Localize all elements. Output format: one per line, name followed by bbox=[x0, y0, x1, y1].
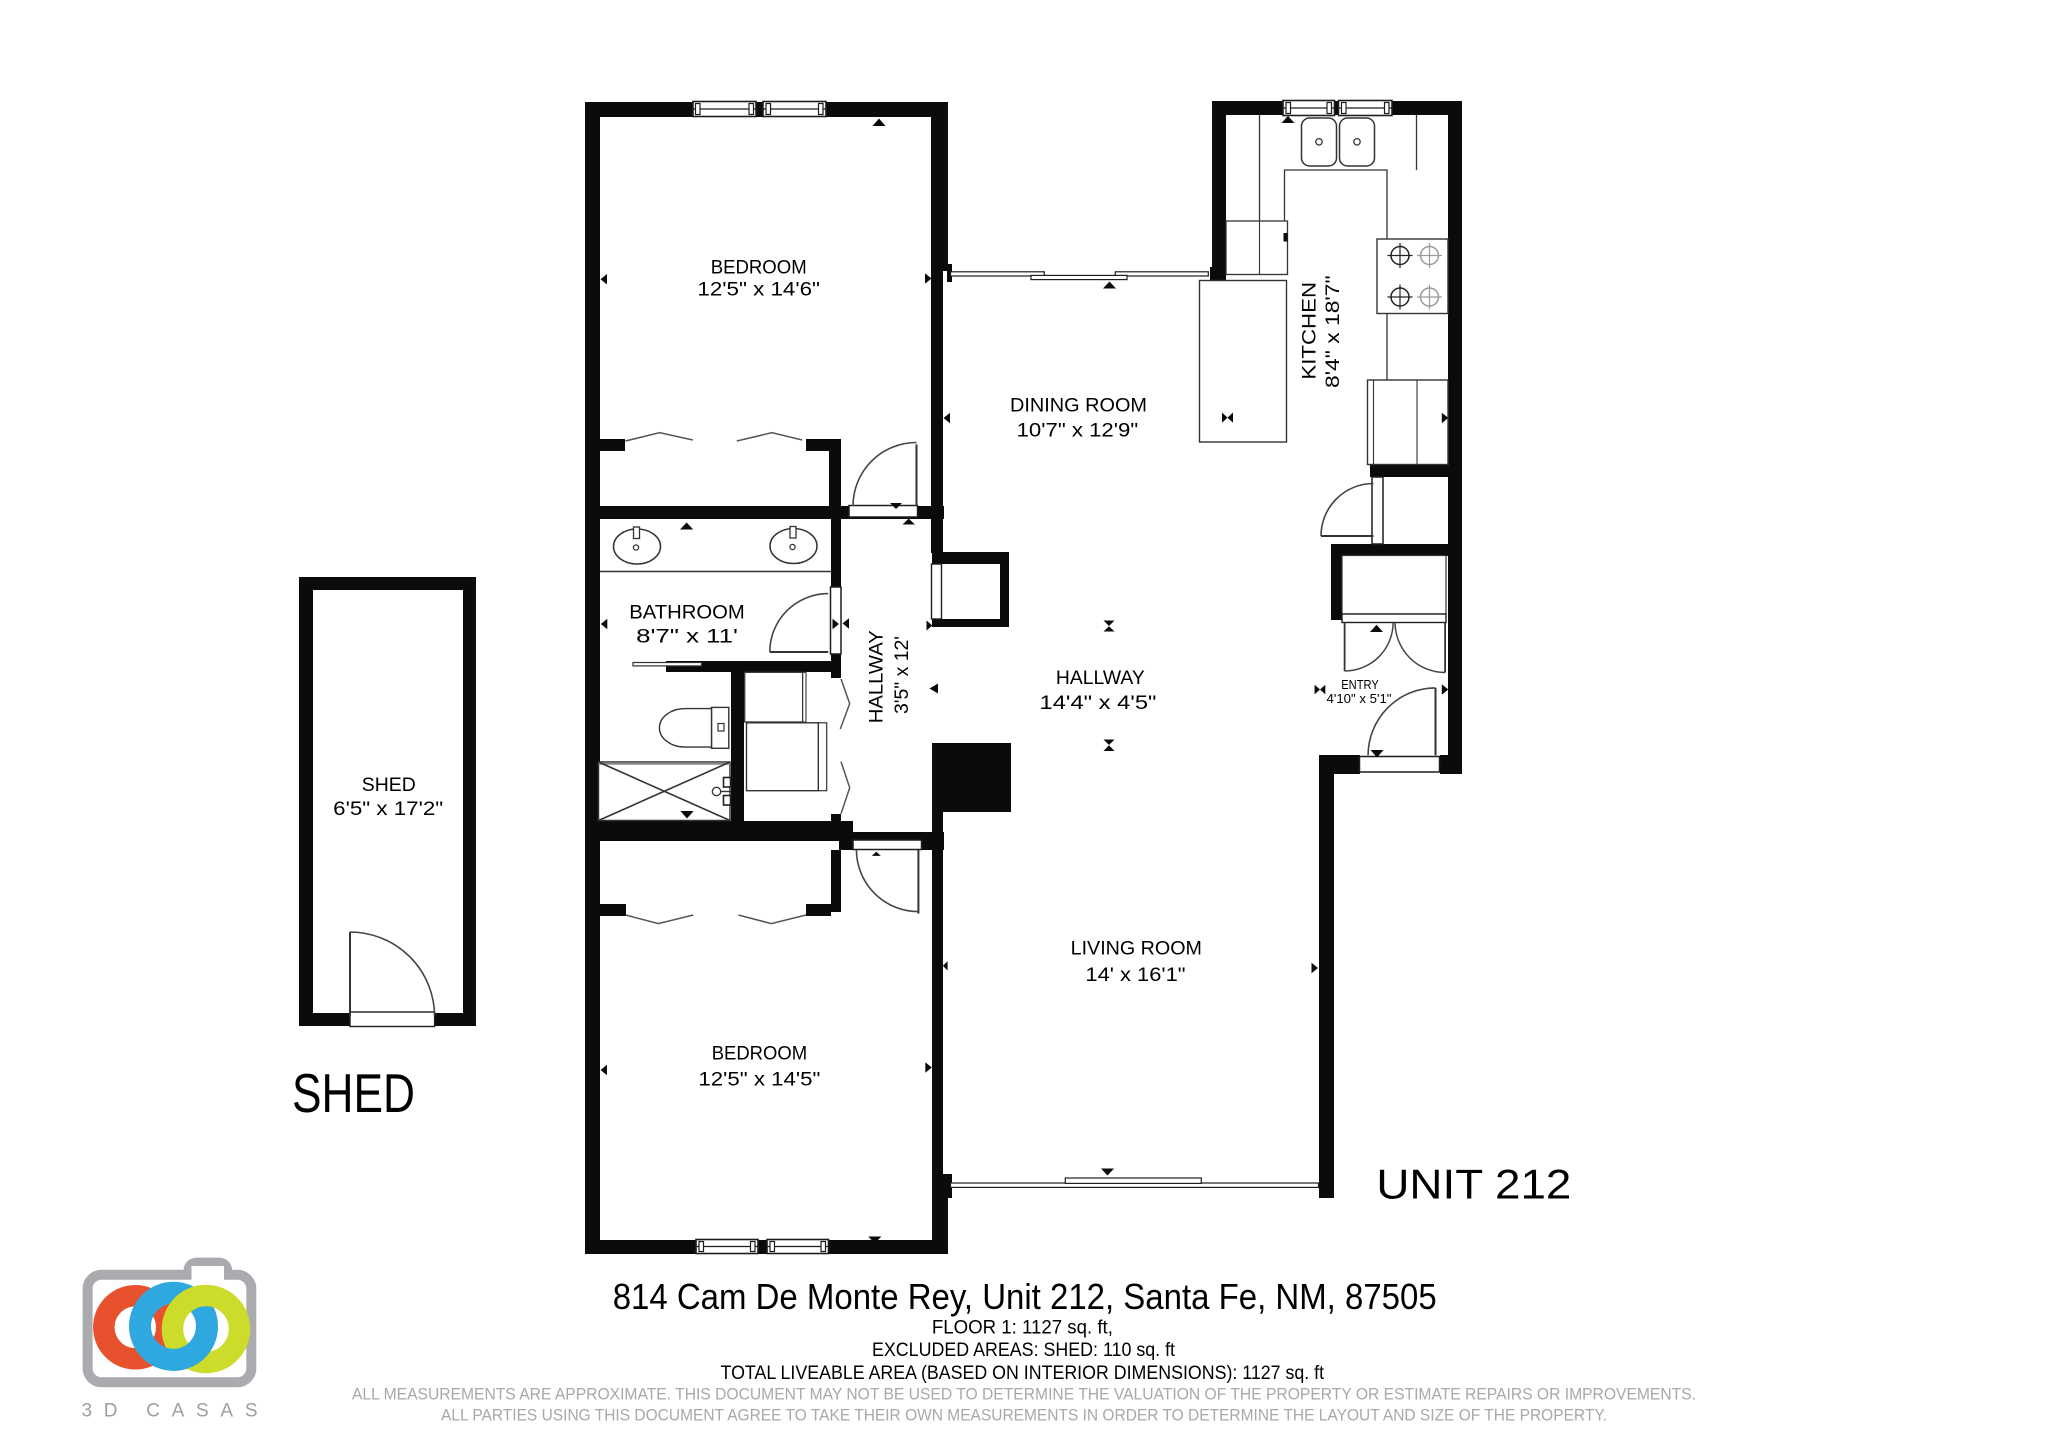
svg-text:KITCHEN: KITCHEN bbox=[1299, 282, 1321, 380]
svg-text:14'4" x 4'5": 14'4" x 4'5" bbox=[1040, 692, 1157, 714]
svg-text:BEDROOM: BEDROOM bbox=[712, 1042, 807, 1064]
svg-text:6'5" x 17'2": 6'5" x 17'2" bbox=[333, 798, 443, 820]
svg-text:8'7" x 11': 8'7" x 11' bbox=[636, 625, 738, 647]
svg-text:8'4" x 18'7": 8'4" x 18'7" bbox=[1322, 275, 1344, 388]
svg-text:ENTRY: ENTRY bbox=[1341, 677, 1379, 692]
svg-text:HALLWAY: HALLWAY bbox=[1056, 667, 1145, 689]
svg-text:10'7" x 12'9": 10'7" x 12'9" bbox=[1017, 420, 1139, 442]
svg-text:12'5" x 14'6": 12'5" x 14'6" bbox=[697, 279, 820, 301]
svg-text:814 Cam De Monte Rey, Unit 212: 814 Cam De Monte Rey, Unit 212, Santa Fe… bbox=[613, 1276, 1437, 1317]
svg-text:TOTAL LIVEABLE AREA (BASED ON: TOTAL LIVEABLE AREA (BASED ON INTERIOR D… bbox=[721, 1363, 1325, 1384]
svg-text:3'5" x 12': 3'5" x 12' bbox=[891, 636, 913, 714]
svg-text:HALLWAY: HALLWAY bbox=[865, 630, 887, 723]
svg-text:14' x 16'1": 14' x 16'1" bbox=[1085, 964, 1185, 986]
svg-text:BEDROOM: BEDROOM bbox=[711, 256, 807, 278]
svg-text:ALL PARTIES USING THIS DOCUMEN: ALL PARTIES USING THIS DOCUMENT AGREE TO… bbox=[441, 1407, 1607, 1425]
svg-text:SHED: SHED bbox=[362, 774, 416, 796]
svg-text:FLOOR 1: 1127 sq. ft,: FLOOR 1: 1127 sq. ft, bbox=[932, 1318, 1113, 1339]
svg-text:SHED: SHED bbox=[292, 1062, 415, 1124]
svg-text:EXCLUDED AREAS: SHED: 110 sq.: EXCLUDED AREAS: SHED: 110 sq. ft bbox=[872, 1340, 1176, 1361]
svg-text:ALL MEASUREMENTS ARE APPROXIMA: ALL MEASUREMENTS ARE APPROXIMATE. THIS D… bbox=[352, 1386, 1696, 1404]
svg-text:LIVING ROOM: LIVING ROOM bbox=[1071, 938, 1202, 960]
svg-text:BATHROOM: BATHROOM bbox=[629, 602, 745, 624]
svg-text:UNIT 212: UNIT 212 bbox=[1376, 1160, 1571, 1207]
svg-text:12'5" x 14'5": 12'5" x 14'5" bbox=[698, 1068, 820, 1090]
svg-text:4'10" x 5'1": 4'10" x 5'1" bbox=[1327, 691, 1392, 706]
svg-text:DINING ROOM: DINING ROOM bbox=[1010, 395, 1147, 417]
